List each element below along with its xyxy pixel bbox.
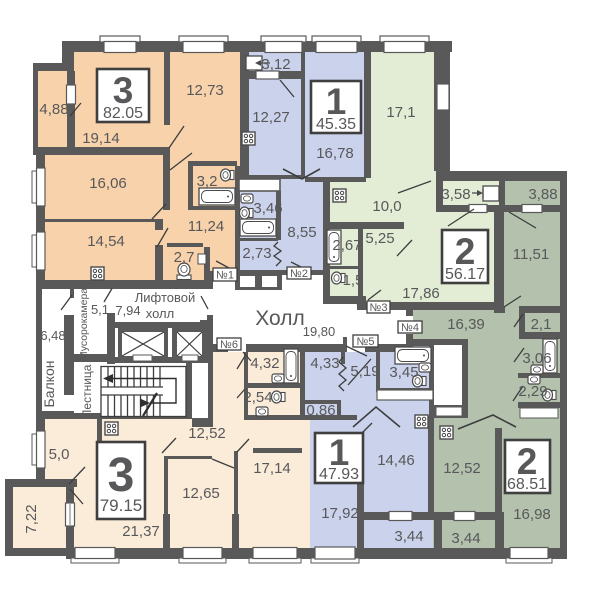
svg-text:12,52: 12,52 — [443, 460, 481, 477]
svg-text:3,88: 3,88 — [528, 186, 557, 203]
svg-text:4,32: 4,32 — [250, 355, 279, 372]
svg-text:17,14: 17,14 — [253, 460, 291, 477]
svg-text:№6: №6 — [220, 339, 238, 351]
svg-text:17,1: 17,1 — [386, 104, 415, 121]
svg-text:№4: №4 — [401, 322, 419, 334]
svg-text:12,52: 12,52 — [188, 425, 226, 442]
svg-text:56.17: 56.17 — [445, 266, 485, 283]
svg-text:3,45: 3,45 — [389, 364, 418, 381]
svg-text:3,44: 3,44 — [394, 528, 423, 545]
svg-text:16,39: 16,39 — [447, 316, 485, 333]
svg-text:4,88: 4,88 — [39, 101, 68, 118]
svg-text:3,58: 3,58 — [441, 186, 470, 203]
svg-text:7,22: 7,22 — [23, 504, 40, 533]
svg-text:5,19: 5,19 — [350, 363, 379, 380]
svg-text:47.93: 47.93 — [319, 466, 359, 483]
svg-text:5,1: 5,1 — [91, 302, 109, 317]
svg-text:2,54: 2,54 — [243, 389, 272, 406]
svg-text:12,27: 12,27 — [252, 109, 290, 126]
svg-text:16,06: 16,06 — [89, 175, 127, 192]
svg-text:2,7: 2,7 — [174, 249, 195, 266]
svg-text:10,0: 10,0 — [372, 198, 401, 215]
svg-text:21,37: 21,37 — [122, 523, 160, 540]
svg-text:Лифтовой: Лифтовой — [135, 290, 196, 305]
svg-text:82.05: 82.05 — [103, 105, 143, 122]
svg-text:11,24: 11,24 — [188, 218, 224, 235]
svg-text:3,44: 3,44 — [451, 530, 480, 547]
svg-text:14,54: 14,54 — [87, 233, 125, 250]
svg-text:3,2: 3,2 — [197, 173, 218, 190]
svg-text:№2: №2 — [290, 268, 308, 280]
svg-text:45.35: 45.35 — [316, 116, 356, 133]
svg-text:17,92: 17,92 — [321, 505, 359, 522]
svg-text:Холл: Холл — [255, 307, 305, 330]
svg-text:7,94: 7,94 — [115, 303, 140, 318]
svg-text:6,48: 6,48 — [40, 328, 65, 343]
svg-text:16,98: 16,98 — [513, 506, 551, 523]
svg-text:17,86: 17,86 — [402, 285, 440, 302]
svg-text:5,25: 5,25 — [365, 230, 394, 247]
svg-text:79.15: 79.15 — [100, 496, 143, 515]
svg-text:12,65: 12,65 — [182, 485, 220, 502]
svg-text:2,73: 2,73 — [242, 245, 271, 262]
svg-text:2,29: 2,29 — [518, 383, 547, 400]
svg-text:№1: №1 — [216, 270, 234, 282]
svg-text:19,80: 19,80 — [303, 324, 336, 339]
svg-text:Лестница: Лестница — [80, 364, 94, 417]
svg-text:№3: №3 — [370, 302, 388, 314]
svg-text:2,67: 2,67 — [332, 237, 361, 254]
svg-text:3: 3 — [108, 449, 135, 502]
svg-text:68.51: 68.51 — [507, 476, 547, 493]
svg-text:0,86: 0,86 — [306, 402, 335, 419]
svg-text:1,5: 1,5 — [343, 272, 364, 289]
svg-text:Балкон: Балкон — [41, 361, 57, 408]
svg-text:11,51: 11,51 — [513, 246, 549, 263]
svg-text:3,12: 3,12 — [261, 56, 290, 73]
svg-text:12,73: 12,73 — [186, 82, 224, 99]
svg-text:14,46: 14,46 — [377, 452, 415, 469]
svg-text:5,0: 5,0 — [49, 446, 70, 463]
svg-text:16,78: 16,78 — [316, 145, 354, 162]
svg-text:3,46: 3,46 — [253, 200, 282, 217]
svg-text:19,14: 19,14 — [82, 130, 120, 147]
svg-text:№5: №5 — [357, 336, 375, 348]
svg-text:8,55: 8,55 — [287, 224, 316, 241]
svg-text:холл: холл — [146, 306, 174, 321]
svg-text:Мусорокамера: Мусорокамера — [78, 288, 90, 360]
svg-text:4,33: 4,33 — [310, 355, 339, 372]
svg-text:3,06: 3,06 — [522, 350, 551, 367]
svg-text:2,1: 2,1 — [531, 316, 552, 333]
